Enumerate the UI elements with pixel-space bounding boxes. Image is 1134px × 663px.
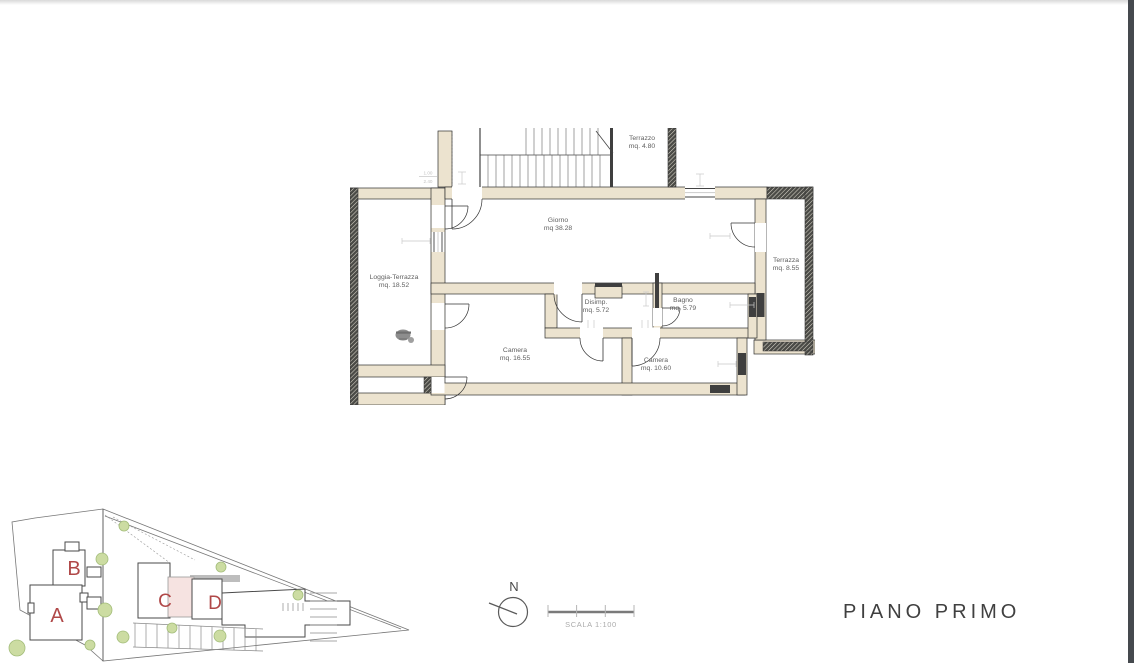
building-label-c: C [158,591,172,612]
dim-label-height: 2.40 [424,179,433,184]
room-label-terrazzo: Terrazzo [629,135,655,142]
viewer-top-edge [0,0,1134,5]
scrollbar[interactable] [1128,0,1134,663]
room-area-bagno: mq. 5.79 [670,305,697,312]
staircase [480,128,613,187]
compass-needle [489,603,517,614]
room-area-camera-piccola: mq. 10.60 [641,365,671,372]
building-label-a: A [50,605,64,627]
room-area-terrazzo: mq. 4.80 [629,143,656,150]
scale-bar: SCALA 1:100 [546,596,638,632]
room-area-giorno: mq 38.28 [544,225,573,232]
scale-bar-drawing: SCALA 1:100 [546,596,638,632]
room-label-terrazza: Terrazza [773,257,799,264]
room-area-loggia: mq. 18.52 [379,282,409,289]
highlighted-unit [168,577,194,617]
windows [434,128,765,393]
plan-title: PIANO PRIMO [843,601,1103,624]
floor-plan-drawing: 1.00 2.40 Terrazzo mq. 4.80 Giorno mq 38… [350,128,815,405]
building-label-d: D [208,593,222,614]
room-label-loggia: Loggia-Terrazza [370,274,419,281]
dim-label-width: 1.00 [424,171,433,176]
room-area-camera-grande: mq. 16.55 [500,355,530,362]
room-label-disimpegno: Disimp. [585,299,608,306]
drawing-sheet: 1.00 2.40 Terrazzo mq. 4.80 Giorno mq 38… [0,0,1134,663]
room-label-camera-piccola: Camera [644,357,668,364]
site-plan-drawing: A B C D [5,505,425,663]
scale-label: SCALA 1:100 [565,620,617,629]
site-plan: A B C D [5,505,425,663]
room-label-bagno: Bagno [673,297,693,304]
north-compass: N [486,574,542,636]
grill-icon [396,330,415,344]
room-label-giorno: Giorno [548,217,569,224]
building-label-b: B [67,558,80,580]
north-compass-drawing: N [486,574,542,636]
room-area-disimpegno: mq. 5.72 [583,307,610,314]
room-area-terrazza: mq. 8.55 [773,265,800,272]
floor-plan: 1.00 2.40 Terrazzo mq. 4.80 Giorno mq 38… [350,128,815,405]
north-label: N [509,579,518,594]
room-label-camera-grande: Camera [503,347,527,354]
